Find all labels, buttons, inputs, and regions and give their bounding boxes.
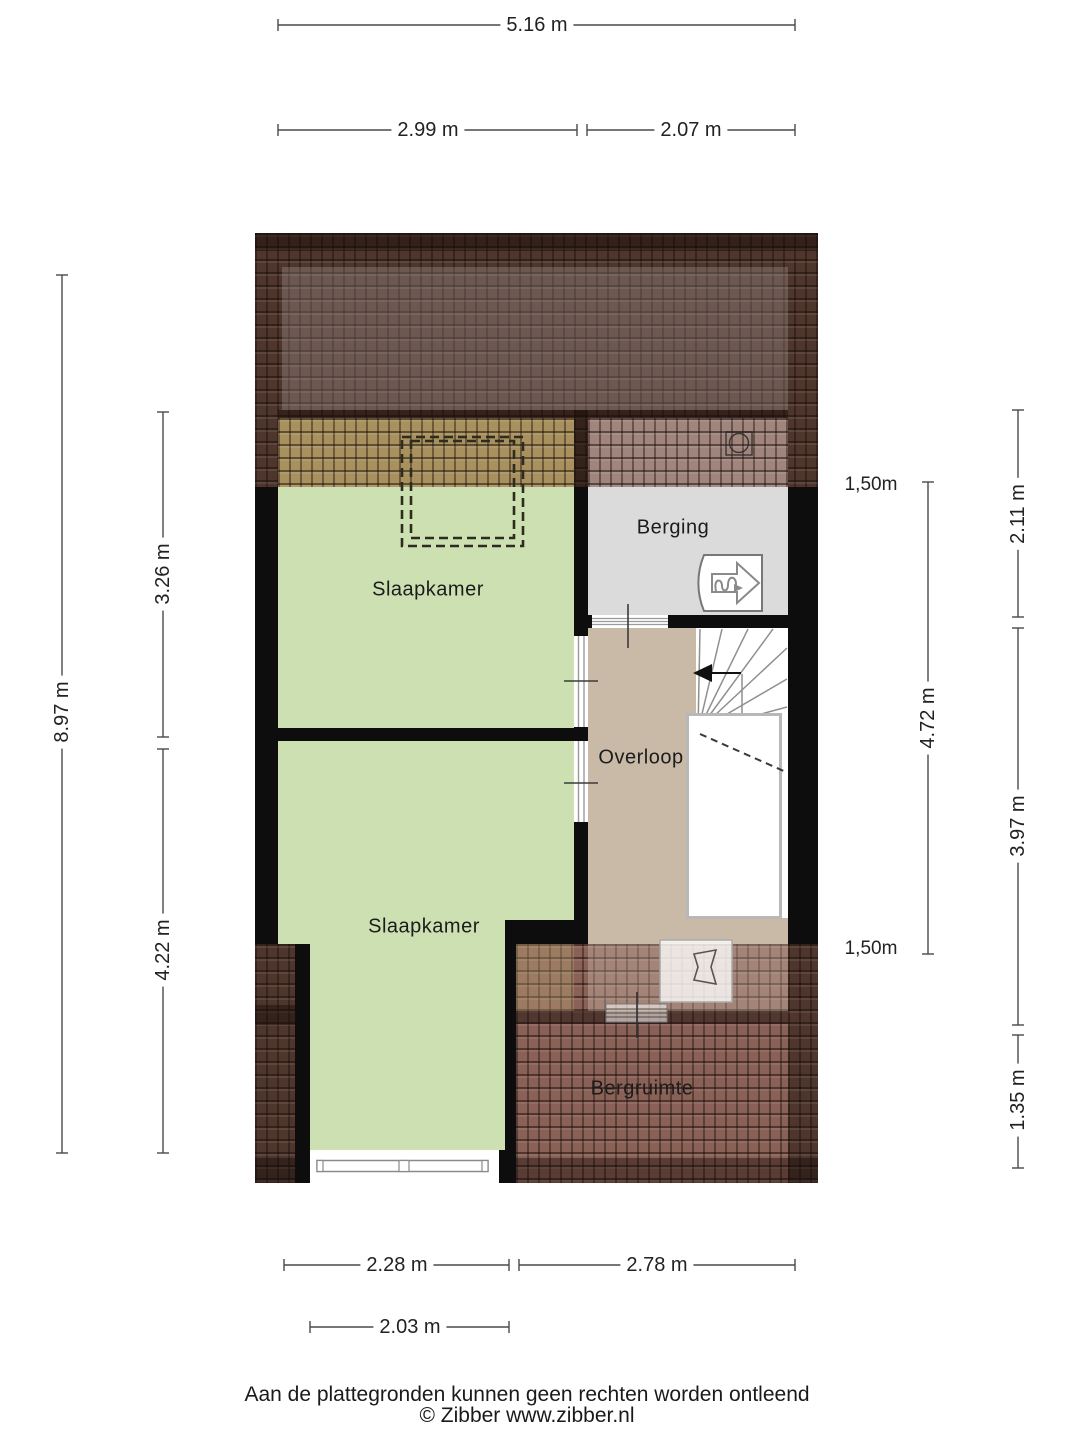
knee-wall-line-left-strip — [255, 1005, 295, 1025]
eave-band-right — [788, 1158, 818, 1183]
wall-outer-right — [788, 487, 818, 944]
window-opening — [295, 1150, 499, 1183]
dim-label-headroom-span: 4.72 m — [917, 681, 939, 754]
room-label-slaapkamer-1: Slaapkamer — [372, 579, 484, 602]
wall-window-right — [499, 1150, 516, 1183]
eave-band-bottom — [516, 1158, 788, 1183]
knee-wall-line-top — [278, 410, 788, 418]
dim-label-width-right: 2.07 m — [654, 119, 727, 141]
room-slaapkamer-2-fill — [310, 944, 505, 1150]
dim-label-depth-total: 8.97 m — [51, 675, 73, 748]
dim-label-slaapkamer2-depth: 4.22 m — [152, 913, 174, 986]
dim-label-berging-depth: 2.11 m — [1007, 478, 1029, 550]
room-label-overloop: Overloop — [598, 747, 683, 770]
roof-over-berging — [588, 418, 788, 487]
wall-hint-through-roof — [574, 410, 588, 487]
dim-label-bottom-right: 2.78 m — [620, 1254, 693, 1276]
room-label-berging: Berging — [637, 517, 709, 540]
wall-berging-south — [588, 615, 788, 628]
roof-bergruimte-haze — [588, 944, 788, 1011]
wall-slaapkamer2-east — [505, 944, 516, 1183]
eave-band-left — [255, 1158, 295, 1183]
dim-label-width-total: 5.16 m — [500, 14, 573, 36]
wall-bedroom-divider — [278, 728, 588, 741]
height-marker-top: 1,50m — [845, 474, 898, 496]
roof-bergruimte-haze-left — [516, 944, 574, 1011]
dim-label-bottom-window: 2.03 m — [373, 1316, 446, 1338]
roof-strip-left — [255, 944, 295, 1183]
room-label-slaapkamer-2: Slaapkamer — [368, 916, 480, 939]
dim-label-bottom-left: 2.28 m — [360, 1254, 433, 1276]
dim-label-bergruimte-depth: 1.35 m — [1007, 1063, 1029, 1136]
dim-label-width-left: 2.99 m — [391, 119, 464, 141]
knee-wall-line-bottom — [516, 1011, 788, 1024]
room-label-bergruimte: Bergruimte — [591, 1078, 694, 1101]
footer-copyright: © Zibber www.zibber.nl — [419, 1404, 634, 1428]
dim-label-slaapkamer1-depth: 3.26 m — [152, 537, 174, 610]
floorplan-page: 5.16 m 2.99 m 2.07 m 8.97 m 3.26 m 4.22 … — [0, 0, 1080, 1440]
roof-top-interior-haze — [282, 267, 788, 410]
dim-label-overloop-depth: 3.97 m — [1007, 789, 1029, 862]
roof-over-slaapkamer-1 — [278, 418, 574, 487]
wall-outer-left — [255, 487, 278, 944]
roof-top-ridge-shadow — [255, 233, 818, 251]
height-marker-bottom: 1,50m — [845, 938, 898, 960]
stairwell-area — [696, 628, 788, 918]
room-slaapkamer-2-fill — [278, 741, 574, 920]
wall-slaapkamer2-south — [505, 920, 588, 944]
wall-left-lower — [295, 944, 310, 1183]
wall-bedrooms-overloop — [574, 487, 588, 944]
roof-strip-right — [788, 944, 818, 1183]
